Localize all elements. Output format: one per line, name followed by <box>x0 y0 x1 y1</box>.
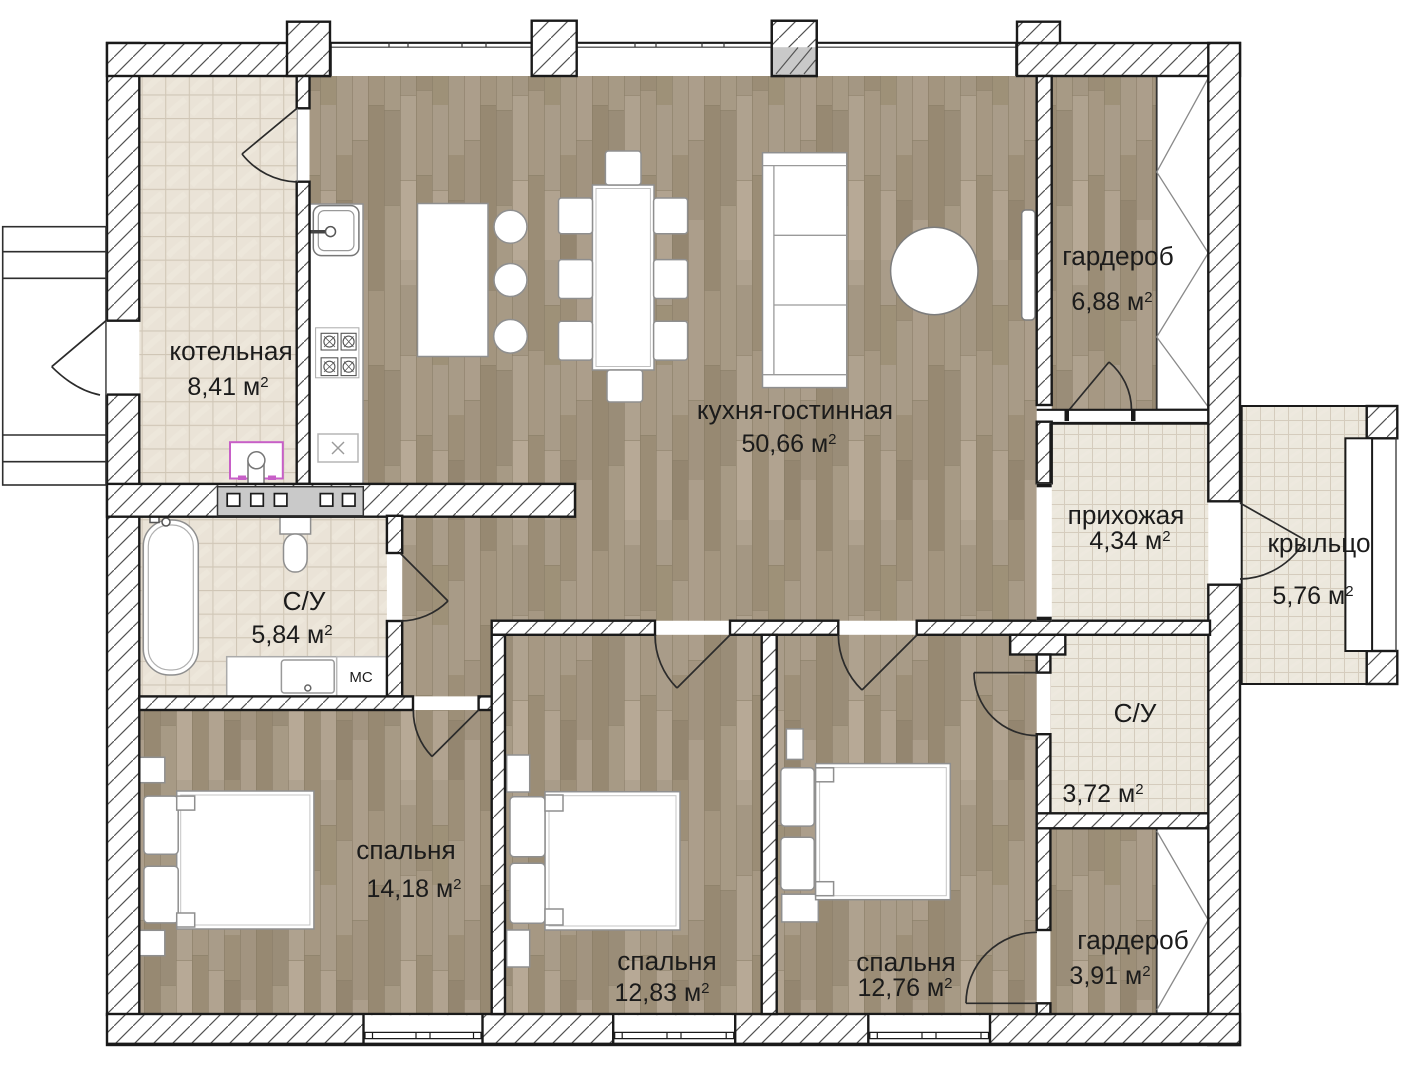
svg-text:спальня: спальня <box>617 946 716 976</box>
svg-text:6,88 м2: 6,88 м2 <box>1071 288 1152 316</box>
svg-text:С/У: С/У <box>283 586 326 616</box>
svg-text:3,72 м2: 3,72 м2 <box>1062 780 1143 808</box>
svg-text:5,84 м2: 5,84 м2 <box>251 621 332 649</box>
svg-text:котельная: котельная <box>169 336 292 366</box>
svg-text:крыльцо: крыльцо <box>1267 528 1370 558</box>
svg-text:МС: МС <box>349 669 372 686</box>
svg-text:гардероб: гардероб <box>1077 925 1188 955</box>
svg-text:3,91 м2: 3,91 м2 <box>1069 962 1150 990</box>
svg-text:прихожая: прихожая <box>1068 500 1185 530</box>
svg-text:С/У: С/У <box>1114 698 1157 728</box>
svg-text:спальня: спальня <box>356 835 455 865</box>
svg-text:14,18 м2: 14,18 м2 <box>366 875 461 903</box>
svg-text:кухня-гостинная: кухня-гостинная <box>697 395 893 425</box>
svg-text:спальня: спальня <box>856 947 955 977</box>
svg-text:12,76 м2: 12,76 м2 <box>857 974 952 1002</box>
svg-text:гардероб: гардероб <box>1062 241 1173 271</box>
svg-text:4,34 м2: 4,34 м2 <box>1089 527 1170 555</box>
svg-text:5,76 м2: 5,76 м2 <box>1272 582 1353 610</box>
svg-text:50,66 м2: 50,66 м2 <box>741 430 836 458</box>
svg-text:8,41 м2: 8,41 м2 <box>187 373 268 401</box>
svg-text:12,83 м2: 12,83 м2 <box>614 979 709 1007</box>
